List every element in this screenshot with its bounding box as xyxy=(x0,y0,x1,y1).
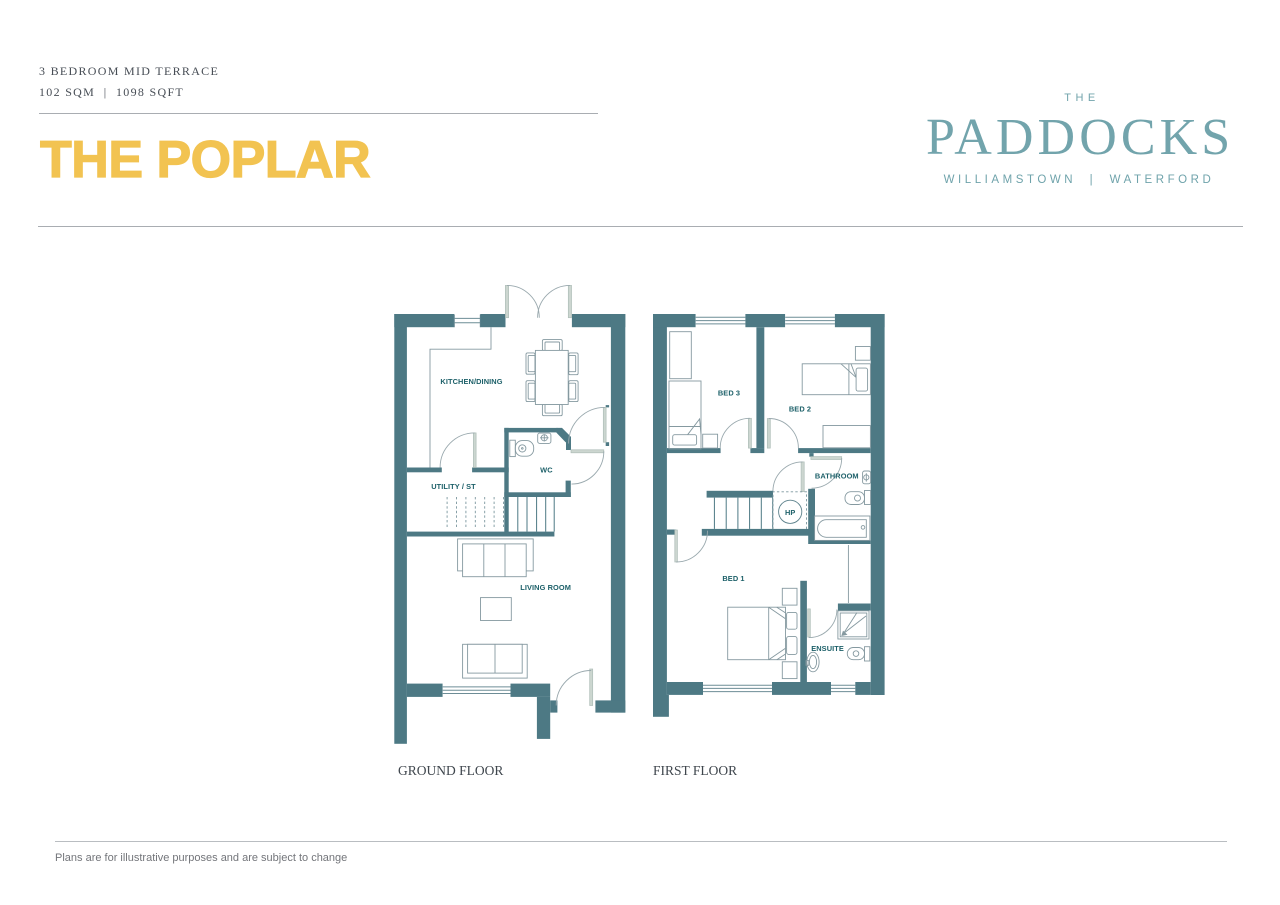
svg-text:BATHROOM: BATHROOM xyxy=(815,471,859,480)
svg-text:LIVING ROOM: LIVING ROOM xyxy=(520,583,571,592)
svg-text:BED 2: BED 2 xyxy=(789,404,811,413)
svg-text:KITCHEN/DINING: KITCHEN/DINING xyxy=(440,377,502,386)
svg-text:ENSUITE: ENSUITE xyxy=(811,644,844,653)
svg-text:GROUND FLOOR: GROUND FLOOR xyxy=(398,763,503,778)
svg-text:FIRST FLOOR: FIRST FLOOR xyxy=(653,763,737,778)
svg-text:UTILITY / ST: UTILITY / ST xyxy=(431,482,476,491)
svg-text:BED 1: BED 1 xyxy=(722,574,744,583)
svg-text:WC: WC xyxy=(540,466,553,475)
svg-text:HP: HP xyxy=(785,508,795,517)
svg-text:BED 3: BED 3 xyxy=(718,388,740,397)
